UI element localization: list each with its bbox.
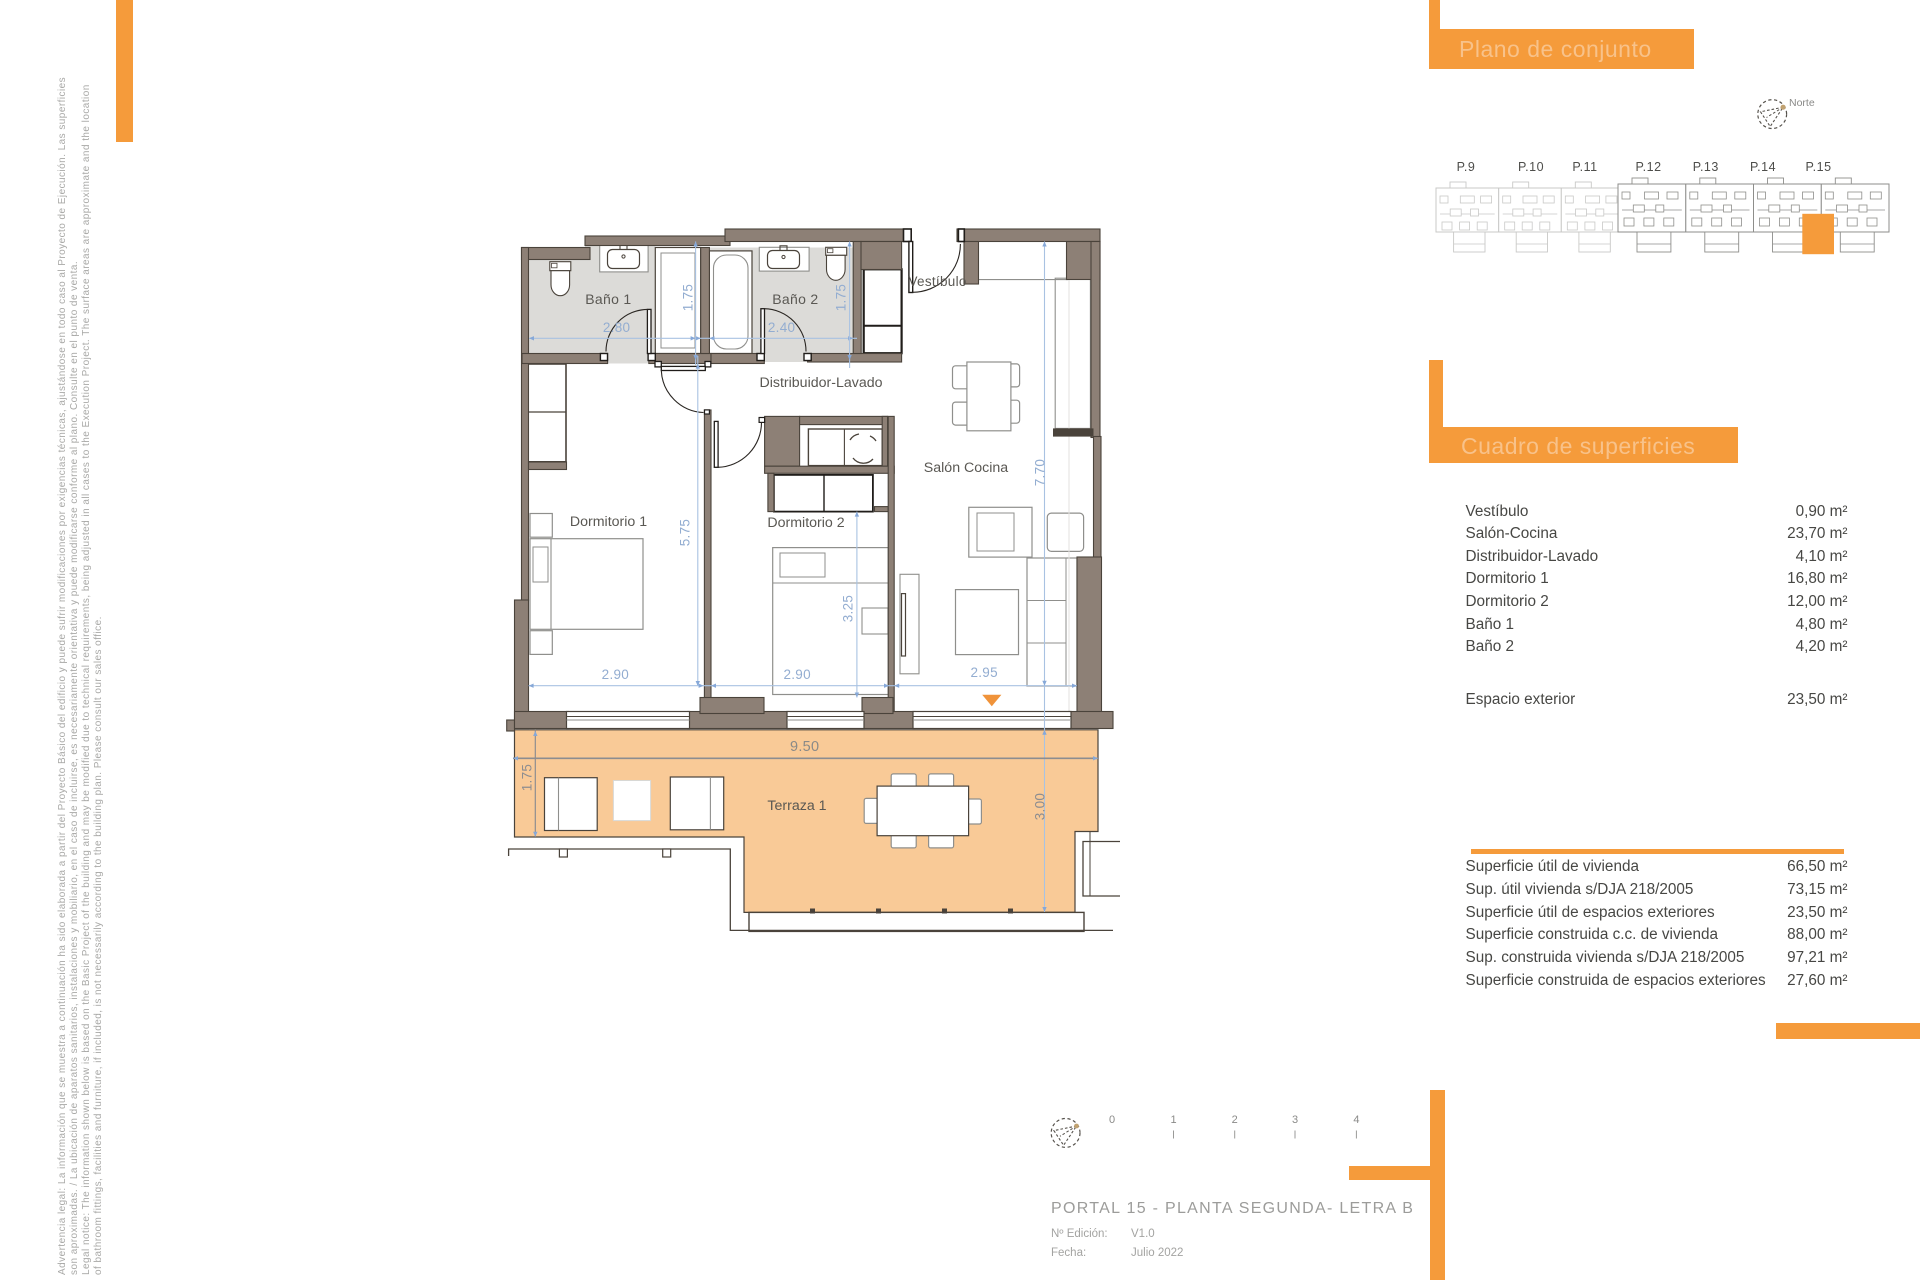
svg-text:Norte: Norte bbox=[1789, 97, 1815, 109]
